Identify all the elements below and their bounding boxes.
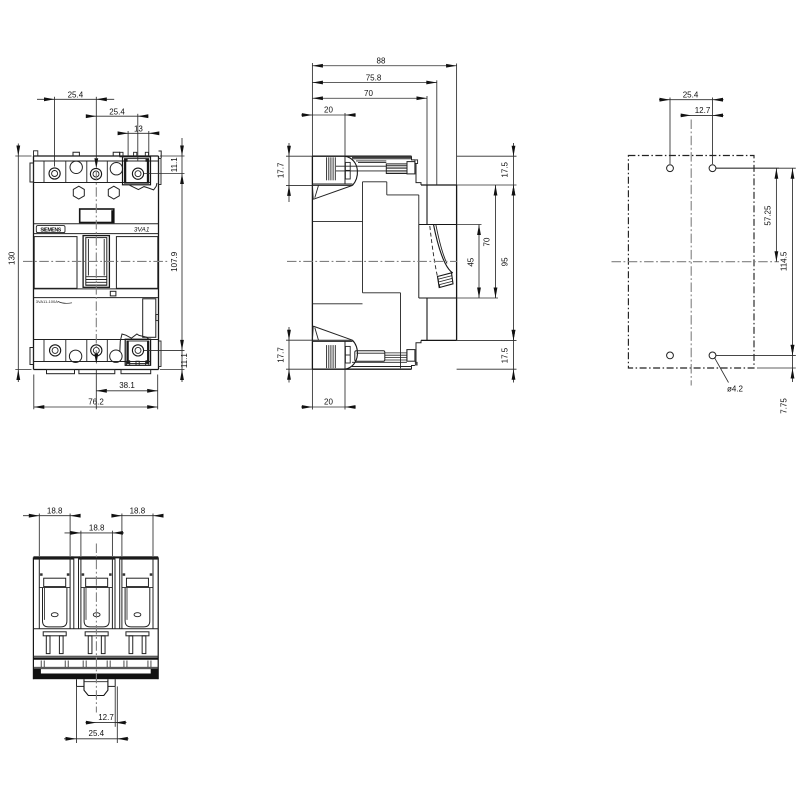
svg-text:3VA1: 3VA1 bbox=[134, 227, 150, 234]
svg-text:38.1: 38.1 bbox=[119, 381, 135, 390]
svg-text:11.1: 11.1 bbox=[180, 353, 189, 369]
svg-text:18.8: 18.8 bbox=[130, 506, 146, 515]
svg-text:45: 45 bbox=[466, 257, 475, 266]
svg-text:70: 70 bbox=[483, 237, 492, 246]
svg-text:25.4: 25.4 bbox=[68, 91, 84, 100]
svg-text:13: 13 bbox=[134, 125, 143, 134]
svg-text:25.4: 25.4 bbox=[683, 91, 699, 100]
svg-text:20: 20 bbox=[324, 106, 333, 115]
svg-text:25.4: 25.4 bbox=[109, 108, 125, 117]
svg-text:17.5: 17.5 bbox=[501, 347, 510, 363]
svg-text:7.75: 7.75 bbox=[780, 398, 789, 414]
svg-text:ø4.2: ø4.2 bbox=[727, 385, 744, 394]
svg-text:57.25: 57.25 bbox=[764, 205, 773, 226]
svg-text:12.7: 12.7 bbox=[98, 713, 114, 722]
svg-text:114.5: 114.5 bbox=[780, 251, 789, 271]
svg-text:18.8: 18.8 bbox=[47, 506, 63, 515]
svg-text:76.2: 76.2 bbox=[88, 398, 104, 407]
svg-text:3VA11-100A: 3VA11-100A bbox=[36, 299, 58, 304]
svg-text:18.8: 18.8 bbox=[89, 524, 105, 533]
svg-text:17.5: 17.5 bbox=[501, 161, 510, 177]
svg-text:17.7: 17.7 bbox=[277, 162, 286, 178]
svg-text:20: 20 bbox=[324, 397, 333, 406]
svg-text:70: 70 bbox=[364, 89, 373, 98]
svg-text:95: 95 bbox=[501, 257, 510, 266]
svg-text:25.4: 25.4 bbox=[89, 729, 105, 738]
svg-text:11.1: 11.1 bbox=[170, 157, 179, 173]
svg-text:107.9: 107.9 bbox=[170, 251, 179, 272]
svg-text:SIEMENS: SIEMENS bbox=[40, 227, 61, 233]
svg-text:12.7: 12.7 bbox=[695, 106, 711, 115]
svg-text:88: 88 bbox=[377, 57, 386, 66]
svg-text:130: 130 bbox=[7, 251, 16, 265]
svg-text:75.8: 75.8 bbox=[366, 73, 382, 82]
svg-text:17.7: 17.7 bbox=[277, 347, 286, 363]
